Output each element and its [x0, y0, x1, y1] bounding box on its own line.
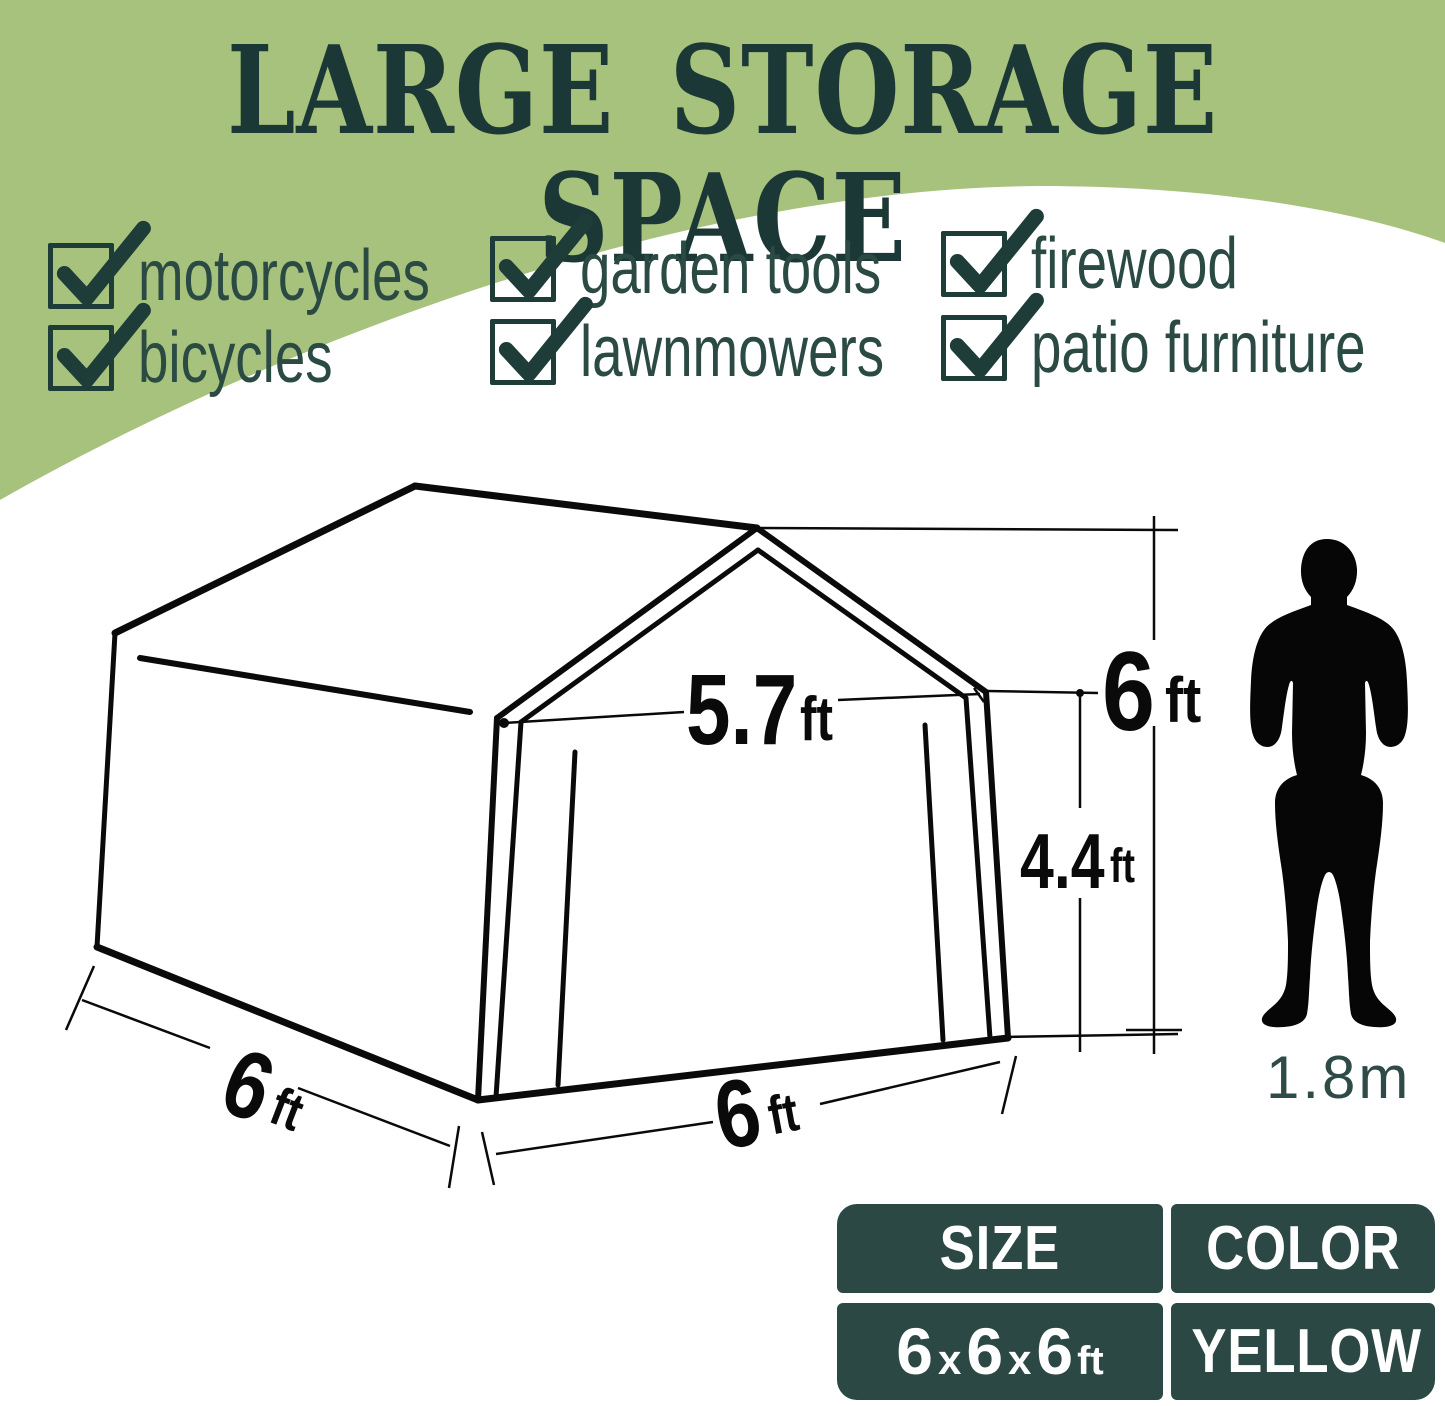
checkmark-icon [497, 296, 591, 388]
product-infographic: LARGE STORAGE SPACE motorcycles garden t… [0, 0, 1445, 1406]
dim-gable-width-unit: ft [800, 684, 833, 754]
feature-label: firewood [1031, 228, 1238, 300]
spec-size-value-cell: 6x6x6ft [837, 1303, 1163, 1400]
checkbox-icon [941, 315, 1007, 381]
checkbox-icon [490, 319, 556, 385]
spec-size-value-part: 6 [966, 1314, 1003, 1388]
spec-size-header-cell: SIZE [837, 1204, 1163, 1293]
feature-label: motorcycles [138, 240, 430, 312]
spec-color-value-cell: YELLOW [1171, 1303, 1435, 1400]
dimension-labels: 5.7 ft 6 ft 4.4 ft 6 ft 6 ft [209, 630, 1202, 1171]
checkmark-icon [948, 292, 1042, 384]
spec-size-value-part: 6 [896, 1314, 933, 1388]
checkmark-icon [55, 220, 149, 312]
checkmark-icon [948, 208, 1042, 300]
checkmark-icon [497, 213, 591, 305]
spec-size-header: SIZE [940, 1204, 1061, 1293]
spec-size-value-part: 6 [1036, 1314, 1073, 1388]
spec-size-value-part: x [1008, 1336, 1031, 1383]
dim-total-height-unit: ft [1165, 664, 1201, 736]
feature-label: lawnmowers [580, 316, 884, 388]
dim-front-width-unit: ft [763, 1082, 803, 1147]
dim-total-height-value: 6 [1102, 630, 1155, 755]
checkbox-icon [48, 325, 114, 391]
dim-front-width-value: 6 [706, 1057, 769, 1170]
feature-item-lawnmowers: lawnmowers [490, 316, 980, 388]
feature-label: patio furniture [1031, 312, 1366, 384]
spec-color-header-cell: COLOR [1171, 1204, 1435, 1293]
spec-color-value: YELLOW [1191, 1303, 1422, 1400]
checkmark-icon [55, 302, 149, 394]
person-silhouette [1250, 539, 1408, 1027]
checkbox-icon [490, 236, 556, 302]
dim-wall-height-value: 4.4 [1020, 818, 1105, 905]
feature-item-patio-furniture: patio furniture [941, 312, 1445, 384]
spec-color-header: COLOR [1206, 1204, 1401, 1293]
checkbox-icon [941, 231, 1007, 297]
person-height-label: 1.8m [1266, 1044, 1411, 1111]
feature-item-bicycles: bicycles [48, 322, 394, 394]
dim-wall-height-unit: ft [1110, 840, 1135, 894]
spec-size-value-part: x [938, 1336, 961, 1383]
feature-item-firewood: firewood [941, 228, 1303, 300]
dim-gable-width-value: 5.7 [686, 655, 797, 767]
tent-outline [97, 486, 1008, 1100]
feature-item-garden-tools: garden tools [490, 233, 976, 305]
feature-label: bicycles [138, 322, 333, 394]
checkbox-icon [48, 243, 114, 309]
spec-size-value-unit: ft [1077, 1339, 1104, 1383]
feature-label: garden tools [580, 233, 881, 305]
